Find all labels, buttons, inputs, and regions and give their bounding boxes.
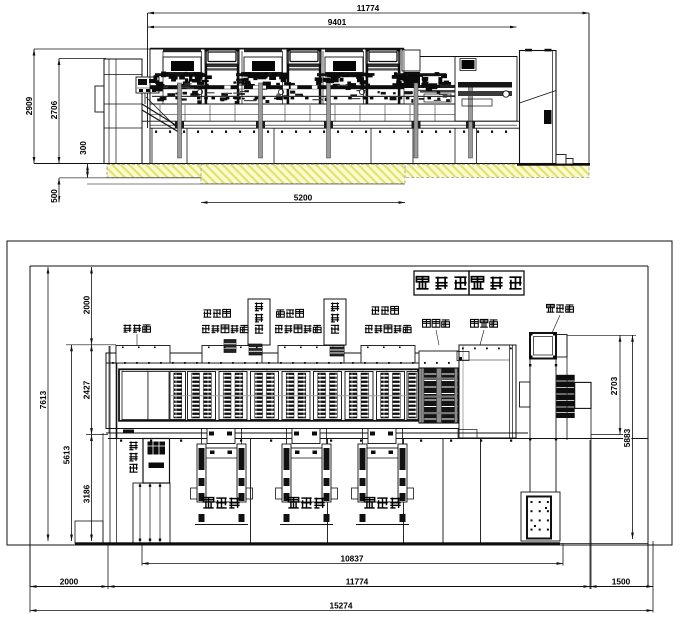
svg-text:2706: 2706: [49, 100, 59, 119]
svg-text:9401: 9401: [328, 17, 347, 27]
svg-text:5613: 5613: [62, 445, 72, 464]
svg-text:2703: 2703: [609, 376, 619, 395]
svg-text:1500: 1500: [612, 577, 631, 587]
svg-text:2000: 2000: [60, 577, 79, 587]
svg-text:11774: 11774: [357, 3, 380, 13]
svg-text:300: 300: [78, 141, 88, 155]
svg-text:7613: 7613: [38, 390, 48, 409]
svg-text:3186: 3186: [82, 484, 92, 503]
svg-text:500: 500: [49, 189, 59, 203]
svg-text:2000: 2000: [82, 295, 92, 314]
svg-text:15274: 15274: [329, 601, 352, 611]
svg-text:2909: 2909: [24, 96, 34, 115]
svg-text:2427: 2427: [82, 380, 92, 399]
svg-text:10837: 10837: [340, 554, 363, 564]
svg-text:11774: 11774: [346, 577, 369, 587]
svg-text:5883: 5883: [622, 428, 632, 447]
svg-text:5200: 5200: [294, 193, 313, 203]
